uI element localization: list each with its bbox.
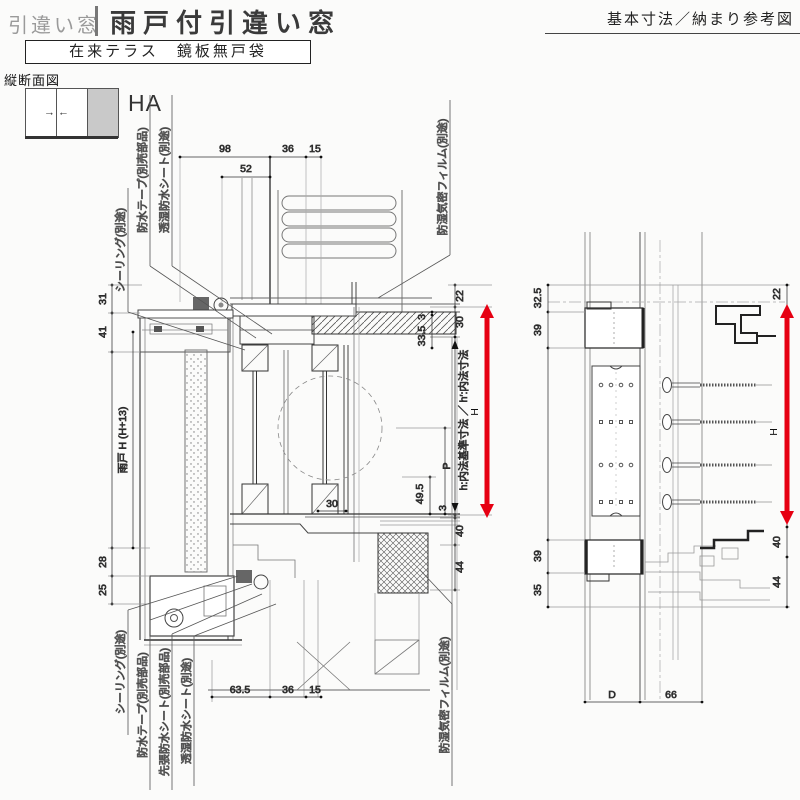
jamb-dim-22: 22 [771, 288, 783, 300]
jamb-structure [548, 232, 790, 700]
dim-33-5: 33.5 [416, 326, 428, 347]
jamb-dim-35: 35 [532, 584, 544, 596]
dim-52: 52 [240, 163, 252, 175]
callout-sealing-top: シーリング(別途) [113, 208, 127, 292]
dim-25: 25 [97, 584, 109, 596]
dim-41: 41 [97, 326, 109, 338]
callout-tape-top: 防水テープ(別売部品) [135, 127, 149, 233]
wall-top-structure [180, 158, 460, 312]
shutter-unit [138, 310, 242, 645]
dim-uchinori-label: h:内法基準寸法 ／ h′:内法寸法 [457, 350, 470, 491]
sill-assembly [230, 337, 460, 690]
dim-36-top: 36 [282, 143, 294, 155]
mounting-screws [663, 378, 773, 510]
h-dimension-arrow: H [469, 304, 494, 518]
callout-film-bottom: 防湿気密フィルム(別途) [437, 637, 451, 754]
dim-63-5: 63.5 [230, 684, 251, 696]
dim-30: 30 [454, 316, 466, 328]
callout-sakibari-bottom: 先張防水シート(別売部品) [157, 648, 171, 776]
dim-3-head: 3 [416, 314, 428, 320]
jamb-dim-d: D [608, 689, 616, 701]
jamb-dim-44: 44 [771, 576, 783, 588]
dim-15-bottom: 15 [309, 684, 321, 696]
dim-36-bottom: 36 [282, 684, 294, 696]
callout-sheet-bottom: 透湿防水シート(別途) [179, 658, 193, 764]
dim-15-top: 15 [309, 143, 321, 155]
callout-tape-bottom: 防水テープ(別売部品) [135, 652, 149, 758]
dim-49-5: 49.5 [414, 484, 426, 505]
dim-p: P [441, 462, 453, 469]
jamb-h-dimension-arrow: H [768, 304, 794, 525]
dim-30-sill: 30 [326, 498, 338, 510]
dim-40: 40 [454, 525, 466, 537]
dim-amado-h: 雨戸 H (H+13) [117, 407, 129, 474]
dim-22: 22 [454, 290, 466, 302]
callout-sealing-bottom: シーリング(別途) [113, 630, 127, 714]
jamb-dim-66: 66 [665, 689, 677, 701]
jamb-dim-40: 40 [771, 536, 783, 548]
dim-98: 98 [219, 143, 231, 155]
callout-sheet-top: 透湿防水シート(別途) [157, 127, 171, 233]
section-drawing-canvas: 98 52 36 15 31 41 28 25 雨戸 H (H+13) 22 3… [0, 0, 800, 800]
jamb-dim-32-5: 32.5 [532, 288, 544, 309]
dim-44: 44 [454, 561, 466, 573]
interior-sill-steps [645, 546, 770, 600]
jamb-dim-h: H [768, 428, 780, 436]
jamb-dim-39-bottom: 39 [532, 550, 544, 562]
dim-3-floor: 3 [437, 505, 449, 511]
jamb-dim-39-top: 39 [532, 324, 544, 336]
handle-swing-arc [278, 376, 382, 480]
dim-28: 28 [97, 556, 109, 568]
callout-film-top: 防湿気密フィルム(別途) [435, 119, 449, 236]
dim-31: 31 [97, 293, 109, 305]
dim-h: H [469, 408, 481, 416]
